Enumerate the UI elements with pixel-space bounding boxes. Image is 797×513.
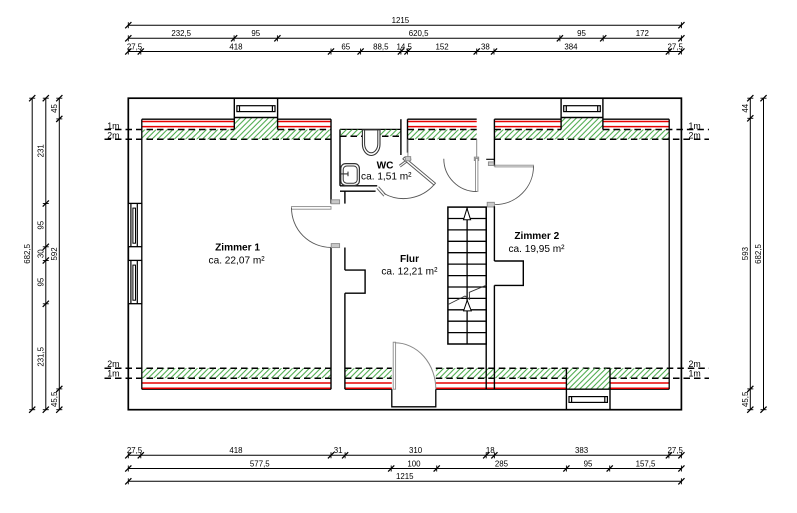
svg-text:30: 30 [37,249,46,258]
svg-text:592: 592 [50,247,59,260]
svg-text:27,5: 27,5 [127,446,143,455]
svg-text:418: 418 [229,42,243,51]
svg-text:27,5: 27,5 [668,446,684,455]
svg-text:ca. 19,95 m²: ca. 19,95 m² [508,244,565,255]
svg-text:WC: WC [377,160,395,171]
svg-text:65: 65 [341,42,350,51]
svg-text:172: 172 [636,29,649,38]
svg-text:593: 593 [741,246,750,260]
svg-text:ca. 12,21 m²: ca. 12,21 m² [381,267,438,278]
svg-text:14,5: 14,5 [397,42,413,51]
svg-text:231: 231 [37,144,46,157]
svg-text:1215: 1215 [392,16,410,25]
svg-text:2m: 2m [107,131,119,141]
svg-text:95: 95 [37,277,46,286]
svg-text:310: 310 [409,446,423,455]
svg-text:ca. 1,51 m²: ca. 1,51 m² [361,172,412,183]
svg-text:2m: 2m [689,359,701,369]
svg-text:100: 100 [407,459,421,468]
svg-text:88,5: 88,5 [373,42,389,51]
svg-text:1m: 1m [689,369,701,379]
svg-text:95: 95 [251,29,260,38]
svg-text:1m: 1m [689,121,701,131]
svg-text:157,5: 157,5 [636,459,656,468]
svg-text:45,5: 45,5 [50,391,59,407]
svg-text:95: 95 [584,459,593,468]
svg-text:44: 44 [741,103,750,112]
svg-text:31: 31 [334,446,343,455]
svg-text:2m: 2m [689,131,701,141]
svg-text:682,5: 682,5 [754,244,763,264]
svg-text:682,5: 682,5 [23,243,32,263]
svg-text:95: 95 [577,29,586,38]
svg-text:620,5: 620,5 [409,29,429,38]
svg-text:384: 384 [564,42,578,51]
svg-text:1215: 1215 [396,472,414,481]
svg-text:231,5: 231,5 [37,346,46,366]
svg-text:45: 45 [50,104,59,113]
svg-text:Flur: Flur [400,254,419,265]
svg-text:383: 383 [575,446,589,455]
svg-text:45,5: 45,5 [741,391,750,407]
svg-text:Zimmer 2: Zimmer 2 [514,231,559,242]
svg-text:285: 285 [495,459,509,468]
svg-text:232,5: 232,5 [171,29,191,38]
svg-text:577,5: 577,5 [250,459,270,468]
svg-text:27,5: 27,5 [127,42,143,51]
svg-text:1m: 1m [107,369,119,379]
svg-text:27,5: 27,5 [668,42,684,51]
svg-text:18: 18 [486,446,495,455]
svg-text:38: 38 [481,42,490,51]
svg-text:152: 152 [436,42,449,51]
svg-text:1m: 1m [107,121,119,131]
svg-text:95: 95 [37,220,46,229]
svg-text:2m: 2m [107,359,119,369]
svg-text:Zimmer 1: Zimmer 1 [215,242,260,253]
svg-text:ca. 22,07 m²: ca. 22,07 m² [209,255,266,266]
svg-text:418: 418 [229,446,243,455]
